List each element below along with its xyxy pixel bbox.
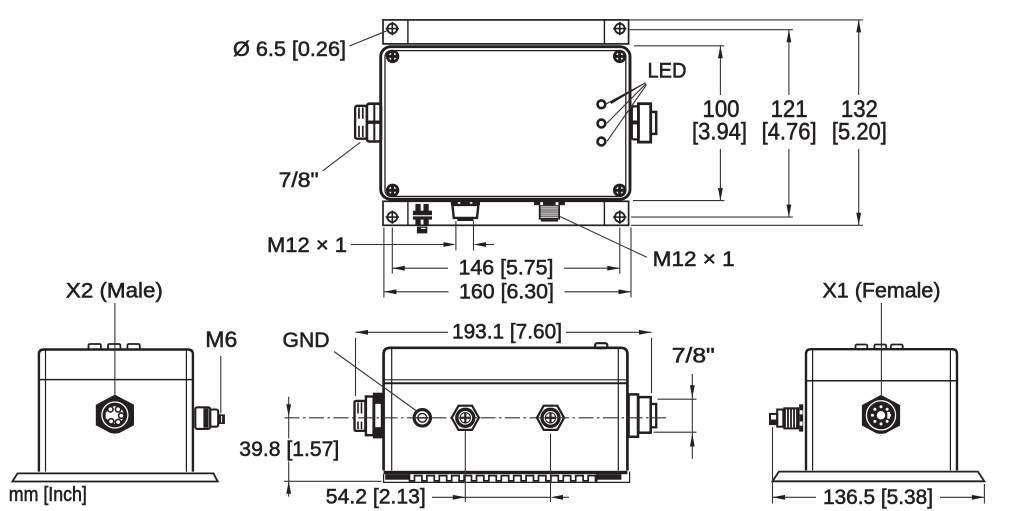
svg-text:X1 (Female): X1 (Female) <box>823 280 941 303</box>
svg-text:Ø 6.5 [0.26]: Ø 6.5 [0.26] <box>233 38 346 61</box>
svg-text:136.5 [5.38]: 136.5 [5.38] <box>823 486 933 509</box>
svg-text:mm [Inch]: mm [Inch] <box>9 484 87 506</box>
svg-text:7/8": 7/8" <box>279 169 319 192</box>
svg-text:LED: LED <box>648 60 687 83</box>
svg-text:7/8": 7/8" <box>672 345 715 368</box>
svg-text:M12 × 1: M12 × 1 <box>267 234 347 257</box>
svg-text:[3.94]: [3.94] <box>692 118 747 145</box>
svg-text:146 [5.75]: 146 [5.75] <box>459 257 554 280</box>
svg-text:160 [6.30]: 160 [6.30] <box>459 280 554 303</box>
svg-text:[4.76]: [4.76] <box>762 118 817 145</box>
svg-text:[5.20]: [5.20] <box>832 118 887 145</box>
svg-text:M12 × 1: M12 × 1 <box>653 248 735 271</box>
svg-text:X2 (Male): X2 (Male) <box>66 280 163 303</box>
svg-text:54.2 [2.13]: 54.2 [2.13] <box>326 486 426 509</box>
svg-text:193.1 [7.60]: 193.1 [7.60] <box>452 321 562 344</box>
svg-text:M6: M6 <box>205 327 237 352</box>
svg-text:39.8 [1.57]: 39.8 [1.57] <box>239 438 339 461</box>
svg-text:GND: GND <box>283 329 330 352</box>
